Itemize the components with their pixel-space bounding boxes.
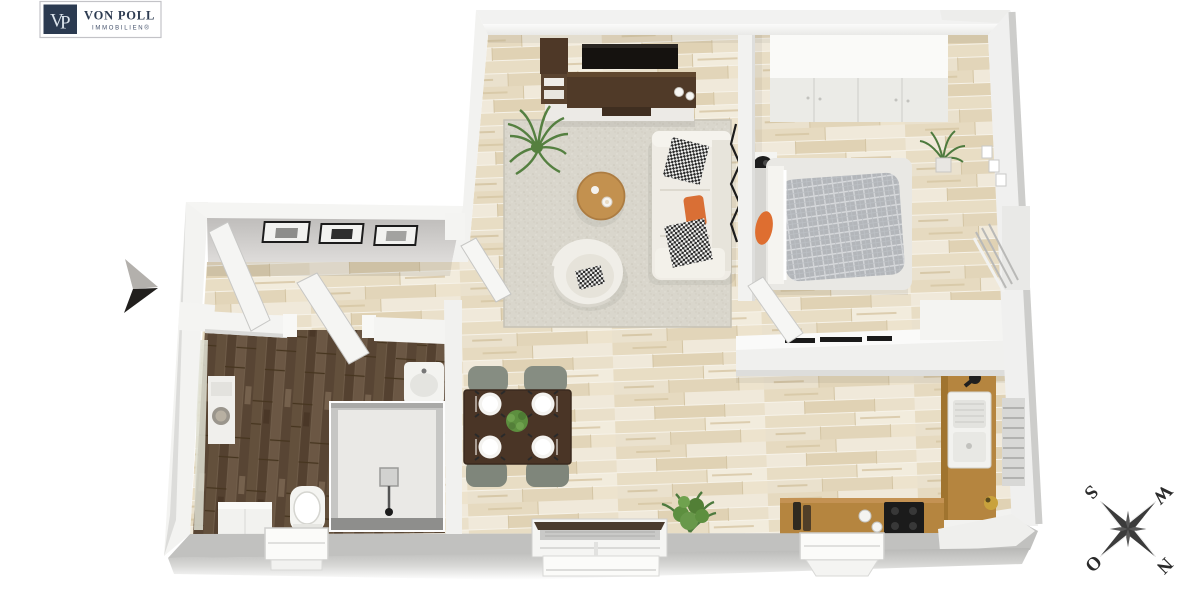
svg-text:IMMOBILIEN®: IMMOBILIEN® — [92, 25, 150, 32]
svg-text:VON POLL: VON POLL — [84, 9, 155, 23]
svg-text:P: P — [60, 13, 71, 34]
